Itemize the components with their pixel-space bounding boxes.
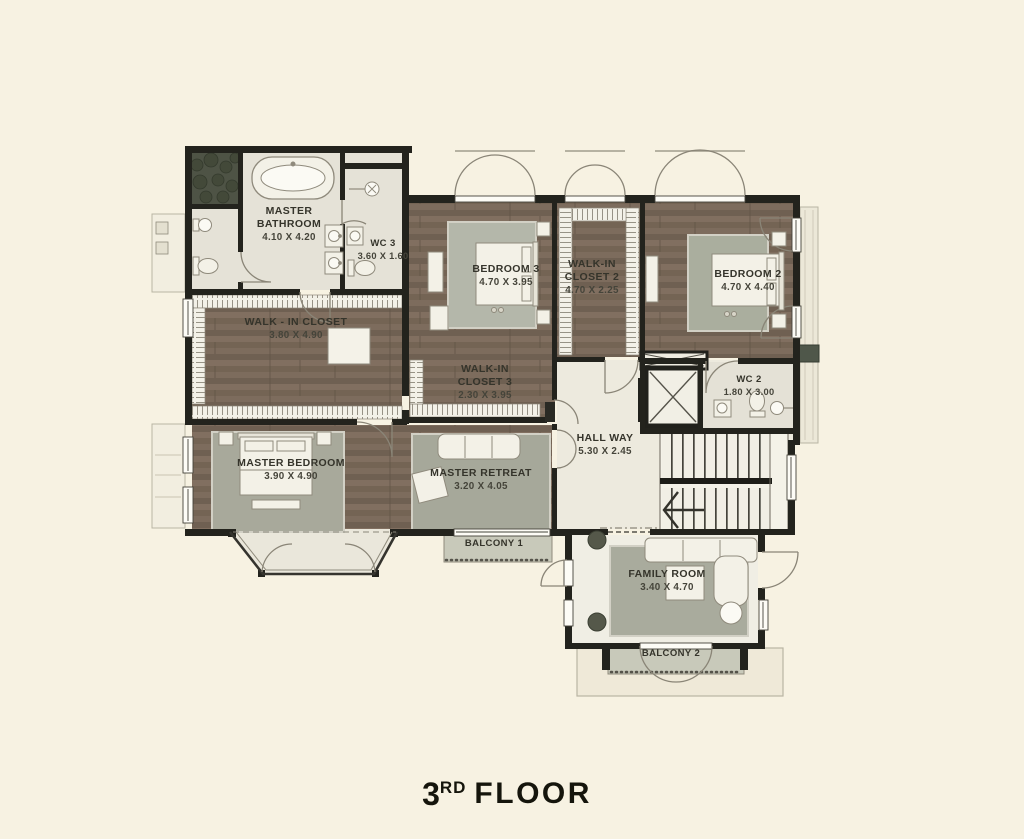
floor-ordinal: RD bbox=[440, 779, 467, 796]
wc3-sink bbox=[347, 227, 363, 245]
wc-left-sink bbox=[193, 219, 212, 232]
balcony2-floor bbox=[608, 647, 744, 674]
floor-plan-drawing bbox=[0, 0, 1024, 839]
floor-plan-page: MASTER BATHROOM 4.10 X 4.20 WC 3 3.60 X … bbox=[0, 0, 1024, 839]
floor-title: 3 RD FLOOR bbox=[422, 778, 592, 810]
bathtub bbox=[252, 157, 334, 199]
floor-word: FLOOR bbox=[474, 779, 592, 809]
balcony1-floor bbox=[444, 534, 552, 562]
wc2-sink bbox=[714, 400, 731, 417]
floor-number: 3 bbox=[422, 778, 440, 810]
wc-left-toilet bbox=[193, 257, 218, 275]
wc2-floor bbox=[703, 362, 793, 428]
wc2-toilet bbox=[750, 391, 766, 417]
wc3-toilet bbox=[348, 260, 375, 276]
closet-island bbox=[328, 328, 370, 364]
planter bbox=[188, 152, 242, 208]
